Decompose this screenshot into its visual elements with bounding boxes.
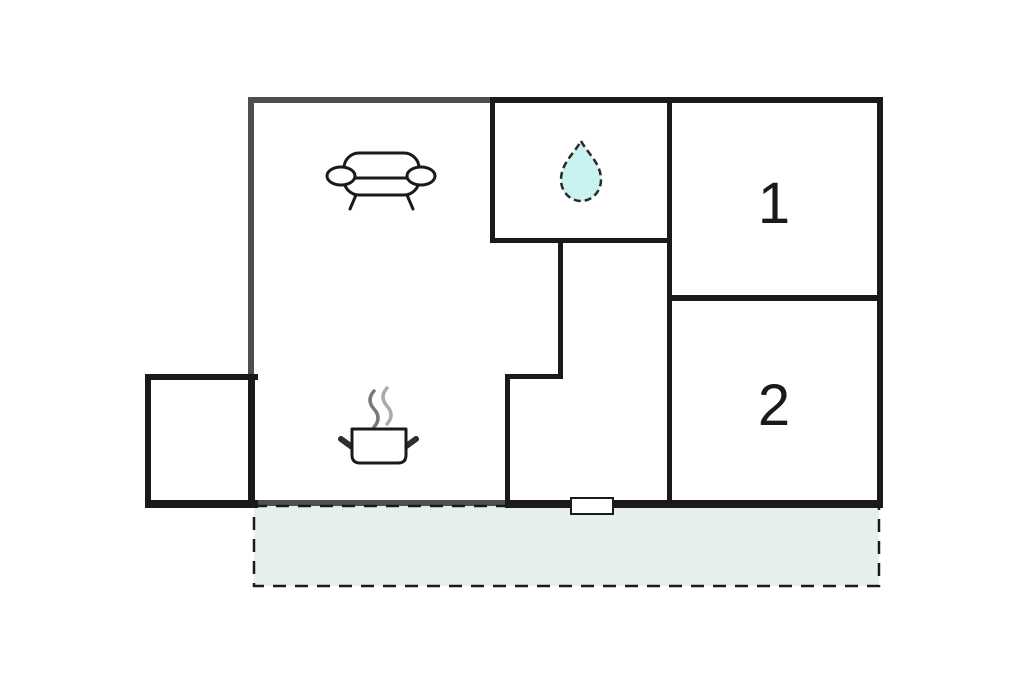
floor-plan-canvas: 1 2 xyxy=(0,0,1024,683)
wall-top-right xyxy=(490,97,883,103)
wall-top-left xyxy=(248,97,493,103)
annex-wall-left xyxy=(145,374,151,507)
bathroom-wall-left xyxy=(490,97,495,243)
entrance-door xyxy=(571,498,613,514)
walls xyxy=(145,97,883,508)
wall-center-vertical xyxy=(667,97,672,508)
wall-left-lower xyxy=(248,374,255,507)
water-drop-icon xyxy=(561,141,601,201)
sofa-leg-right xyxy=(407,195,413,209)
room-2-label: 2 xyxy=(758,373,790,438)
steam-icon xyxy=(370,391,378,427)
room-1-label: 1 xyxy=(758,171,790,236)
sofa-armrest-left xyxy=(327,167,355,185)
sofa-armrest-right xyxy=(407,167,435,185)
hallway-wall-upper xyxy=(558,238,563,379)
floor-plan-page: 1 2 xyxy=(0,0,1024,683)
wall-bottom-right xyxy=(506,500,883,508)
bedroom-divider-wall xyxy=(667,295,883,301)
pot-body xyxy=(352,429,406,463)
hallway-wall-lower xyxy=(505,374,510,508)
sofa-leg-left xyxy=(350,195,356,209)
steam-icon xyxy=(383,388,391,424)
wall-right xyxy=(877,97,883,508)
annex-wall-bottom xyxy=(145,500,258,508)
bathroom-wall-bottom xyxy=(490,238,672,243)
pot-handle-left xyxy=(341,439,352,447)
sofa-icon xyxy=(327,153,435,209)
annex-wall-top xyxy=(145,374,258,380)
cooking-pot-icon xyxy=(341,388,416,463)
wall-left xyxy=(248,97,254,378)
hallway-wall-step xyxy=(505,374,563,379)
terrace-area xyxy=(254,506,879,586)
